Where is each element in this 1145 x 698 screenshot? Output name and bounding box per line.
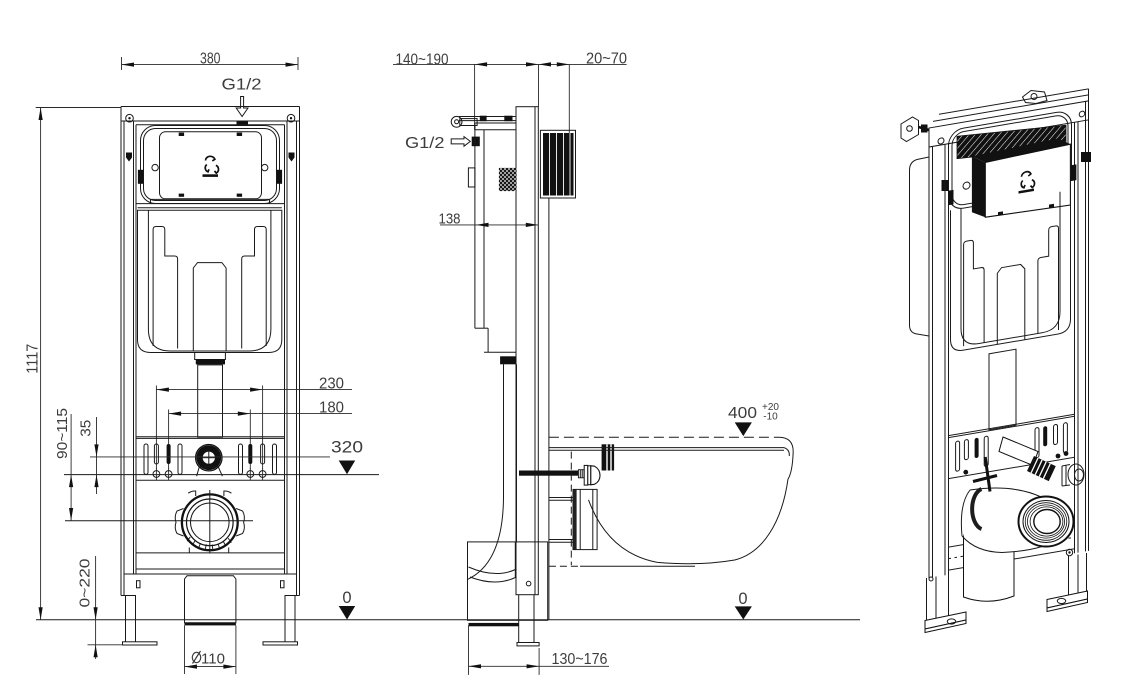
svg-text:320: 320 <box>331 439 363 457</box>
svg-text:130~176: 130~176 <box>552 651 608 668</box>
svg-text:180: 180 <box>319 400 344 417</box>
svg-text:230: 230 <box>319 376 344 393</box>
svg-text:0: 0 <box>738 590 747 608</box>
svg-text:90~115: 90~115 <box>55 408 71 459</box>
svg-text:-10: -10 <box>763 412 778 423</box>
svg-text:110: 110 <box>201 651 225 668</box>
svg-text:400: 400 <box>728 405 757 422</box>
svg-text:G1/2: G1/2 <box>405 135 445 152</box>
svg-text:20~70: 20~70 <box>586 51 627 68</box>
svg-text:380: 380 <box>200 51 221 68</box>
svg-text:0~220: 0~220 <box>78 559 94 608</box>
svg-text:1117: 1117 <box>25 344 42 374</box>
svg-text:G1/2: G1/2 <box>222 77 262 94</box>
svg-text:0: 0 <box>342 589 351 607</box>
svg-text:140~190: 140~190 <box>396 52 449 69</box>
svg-text:35: 35 <box>79 420 95 437</box>
